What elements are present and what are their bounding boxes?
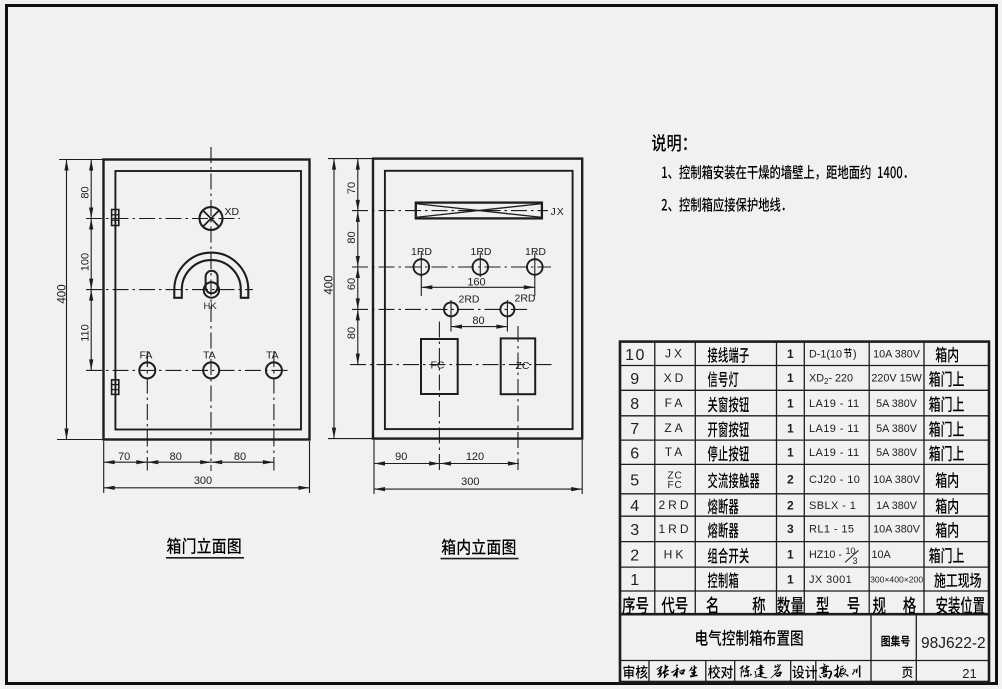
svg-text:XD: XD <box>225 206 240 218</box>
svg-text:1: 1 <box>787 421 794 435</box>
svg-text:1RD: 1RD <box>411 246 432 258</box>
svg-text:1RD: 1RD <box>471 246 492 258</box>
svg-text:60: 60 <box>346 278 358 290</box>
svg-text:2RD: 2RD <box>515 293 536 305</box>
svg-text:7: 7 <box>630 421 640 438</box>
svg-text:FA: FA <box>140 350 153 362</box>
svg-text:1: 1 <box>630 572 640 589</box>
svg-text:JX: JX <box>665 347 685 361</box>
svg-text:4: 4 <box>630 498 640 515</box>
svg-text:CJ20 - 10: CJ20 - 10 <box>809 474 860 486</box>
svg-text:): ) <box>853 348 857 360</box>
svg-text:160: 160 <box>467 276 485 288</box>
svg-text:RL1 - 15: RL1 - 15 <box>809 524 854 536</box>
svg-text:5A 380V: 5A 380V <box>876 398 918 410</box>
svg-text:2: 2 <box>787 472 794 486</box>
svg-text:SBLX - 1: SBLX - 1 <box>809 500 856 512</box>
svg-text:5: 5 <box>630 472 640 489</box>
svg-text:70: 70 <box>346 182 358 194</box>
svg-text:5A 380V: 5A 380V <box>876 447 918 459</box>
svg-text:10A: 10A <box>872 549 892 561</box>
svg-text:6: 6 <box>630 445 640 462</box>
svg-text:3: 3 <box>787 522 794 536</box>
svg-text:220V 15W: 220V 15W <box>871 373 922 385</box>
svg-text:8: 8 <box>630 396 640 413</box>
svg-text:TA: TA <box>203 350 216 362</box>
svg-text:300×400×200: 300×400×200 <box>870 575 923 585</box>
svg-text:80: 80 <box>80 186 92 198</box>
svg-text:3: 3 <box>630 522 640 539</box>
svg-text:2RD: 2RD <box>658 498 691 512</box>
svg-text:80: 80 <box>346 327 358 339</box>
svg-text:XD: XD <box>664 371 687 385</box>
svg-text:400: 400 <box>324 275 336 294</box>
svg-text:2: 2 <box>630 548 640 565</box>
svg-text:100: 100 <box>80 253 92 271</box>
svg-text:80: 80 <box>170 451 182 463</box>
svg-text:1: 1 <box>787 371 794 385</box>
svg-text:1A 380V: 1A 380V <box>876 500 918 512</box>
svg-text:10A 380V: 10A 380V <box>873 474 921 486</box>
svg-text:1: 1 <box>787 347 794 361</box>
svg-text:D-1(10: D-1(10 <box>809 348 842 360</box>
svg-text:110: 110 <box>80 324 92 342</box>
svg-text:FC: FC <box>668 480 683 491</box>
svg-text:JX 3001: JX 3001 <box>809 574 852 586</box>
svg-text:TA: TA <box>266 350 279 362</box>
svg-text:1: 1 <box>787 572 794 586</box>
svg-text:ZA: ZA <box>664 421 685 435</box>
svg-text:10A 380V: 10A 380V <box>873 524 921 536</box>
svg-text:10A 380V: 10A 380V <box>873 348 921 360</box>
svg-text:21: 21 <box>962 666 976 681</box>
svg-text:90: 90 <box>395 451 407 463</box>
svg-text:LA19 - 11: LA19 - 11 <box>809 447 859 459</box>
svg-text:FC: FC <box>431 360 445 372</box>
svg-text:HK: HK <box>664 547 687 561</box>
svg-text:2: 2 <box>787 498 794 512</box>
svg-text:ZC: ZC <box>516 360 530 372</box>
svg-text:300: 300 <box>194 475 212 487</box>
svg-text:120: 120 <box>466 451 484 463</box>
svg-text:80: 80 <box>234 451 246 463</box>
svg-text:10: 10 <box>625 347 646 364</box>
svg-text:80: 80 <box>346 231 358 243</box>
svg-text:FA: FA <box>665 396 686 410</box>
svg-text:5A 380V: 5A 380V <box>876 423 918 435</box>
svg-text:9: 9 <box>630 371 640 388</box>
svg-text:2RD: 2RD <box>459 294 480 306</box>
svg-text:LA19 - 11: LA19 - 11 <box>809 398 859 410</box>
svg-text:1: 1 <box>787 396 794 410</box>
svg-text:1: 1 <box>787 548 794 562</box>
svg-text:300: 300 <box>461 476 479 488</box>
svg-text:80: 80 <box>472 315 484 327</box>
svg-text:JX: JX <box>551 206 565 218</box>
svg-text:1RD: 1RD <box>658 522 691 536</box>
svg-text:HZ10 -: HZ10 - <box>809 549 842 561</box>
svg-text:HK: HK <box>204 301 218 312</box>
svg-text:LA19 - 11: LA19 - 11 <box>809 423 859 435</box>
svg-text:1RD: 1RD <box>525 246 546 258</box>
svg-text:TA: TA <box>665 445 685 459</box>
svg-text:98J622-2: 98J622-2 <box>921 635 986 652</box>
svg-text:70: 70 <box>118 451 130 463</box>
svg-text:3: 3 <box>853 556 858 566</box>
svg-text:XD2- 220: XD2- 220 <box>809 373 853 387</box>
svg-text:400: 400 <box>57 284 69 303</box>
svg-text:1: 1 <box>787 446 794 460</box>
